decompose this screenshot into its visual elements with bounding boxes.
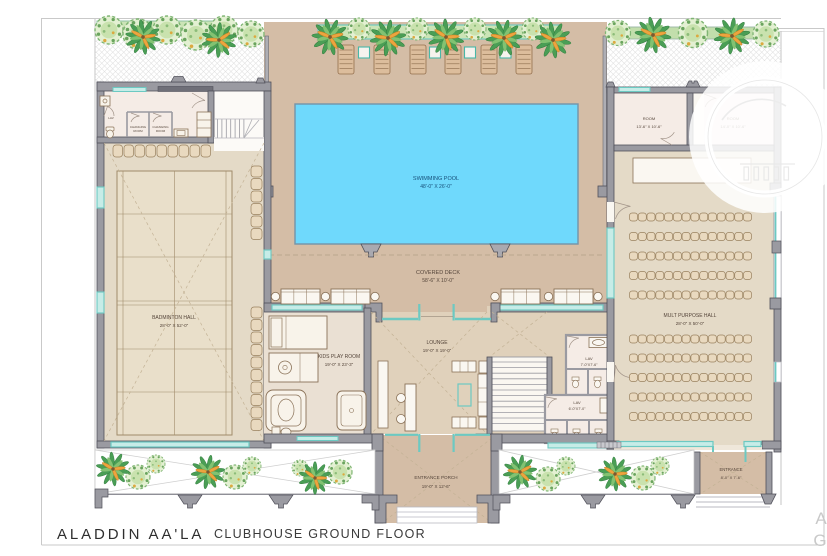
svg-text:G: G bbox=[813, 531, 826, 550]
svg-text:48'-0" X 26'-0": 48'-0" X 26'-0" bbox=[420, 184, 452, 190]
svg-text:ALADDIN AA'LA: ALADDIN AA'LA bbox=[57, 526, 204, 543]
svg-text:13'-6" X 10'-6": 13'-6" X 10'-6" bbox=[636, 124, 662, 129]
svg-text:28'-0" X 50'-0": 28'-0" X 50'-0" bbox=[676, 321, 705, 326]
svg-text:8'-0" X 7'-6": 8'-0" X 7'-6" bbox=[721, 475, 742, 480]
svg-text:A: A bbox=[815, 509, 827, 528]
svg-text:19'-0" X 12'-6": 19'-0" X 12'-6" bbox=[422, 484, 451, 489]
svg-text:58'-6" X 10'-0": 58'-6" X 10'-0" bbox=[422, 278, 454, 284]
svg-text:SWIMMING POOL: SWIMMING POOL bbox=[413, 176, 459, 182]
svg-text:LAV: LAV bbox=[108, 116, 113, 120]
svg-text:LAV: LAV bbox=[573, 400, 581, 405]
svg-text:BADMINTON HALL: BADMINTON HALL bbox=[152, 315, 196, 321]
svg-text:28'-0" X 52'-0": 28'-0" X 52'-0" bbox=[160, 323, 189, 328]
svg-text:LAV: LAV bbox=[585, 356, 593, 361]
svg-text:7'-0"X7'-6": 7'-0"X7'-6" bbox=[581, 363, 598, 367]
svg-text:KIDS PLAY ROOM: KIDS PLAY ROOM bbox=[318, 354, 360, 360]
svg-text:19'-0" X 23'-3": 19'-0" X 23'-3" bbox=[325, 362, 354, 367]
svg-text:LOUNGE: LOUNGE bbox=[426, 340, 448, 346]
svg-text:ROOM: ROOM bbox=[133, 129, 143, 133]
svg-text:6'-0"X7'-0": 6'-0"X7'-0" bbox=[569, 407, 586, 411]
svg-text:19'-0" X 19'-0": 19'-0" X 19'-0" bbox=[423, 348, 452, 353]
svg-text:MULT PURPOSE HALL: MULT PURPOSE HALL bbox=[664, 313, 717, 319]
svg-text:COVERED DECK: COVERED DECK bbox=[416, 270, 460, 276]
svg-text:ROOM: ROOM bbox=[156, 129, 166, 133]
svg-text:ENTRANCE: ENTRANCE bbox=[719, 467, 742, 472]
svg-text:CLUBHOUSE GROUND FLOOR: CLUBHOUSE GROUND FLOOR bbox=[214, 527, 426, 541]
svg-text:ENTRANCE PORCH: ENTRANCE PORCH bbox=[414, 475, 457, 480]
svg-text:ROOM: ROOM bbox=[643, 116, 655, 121]
